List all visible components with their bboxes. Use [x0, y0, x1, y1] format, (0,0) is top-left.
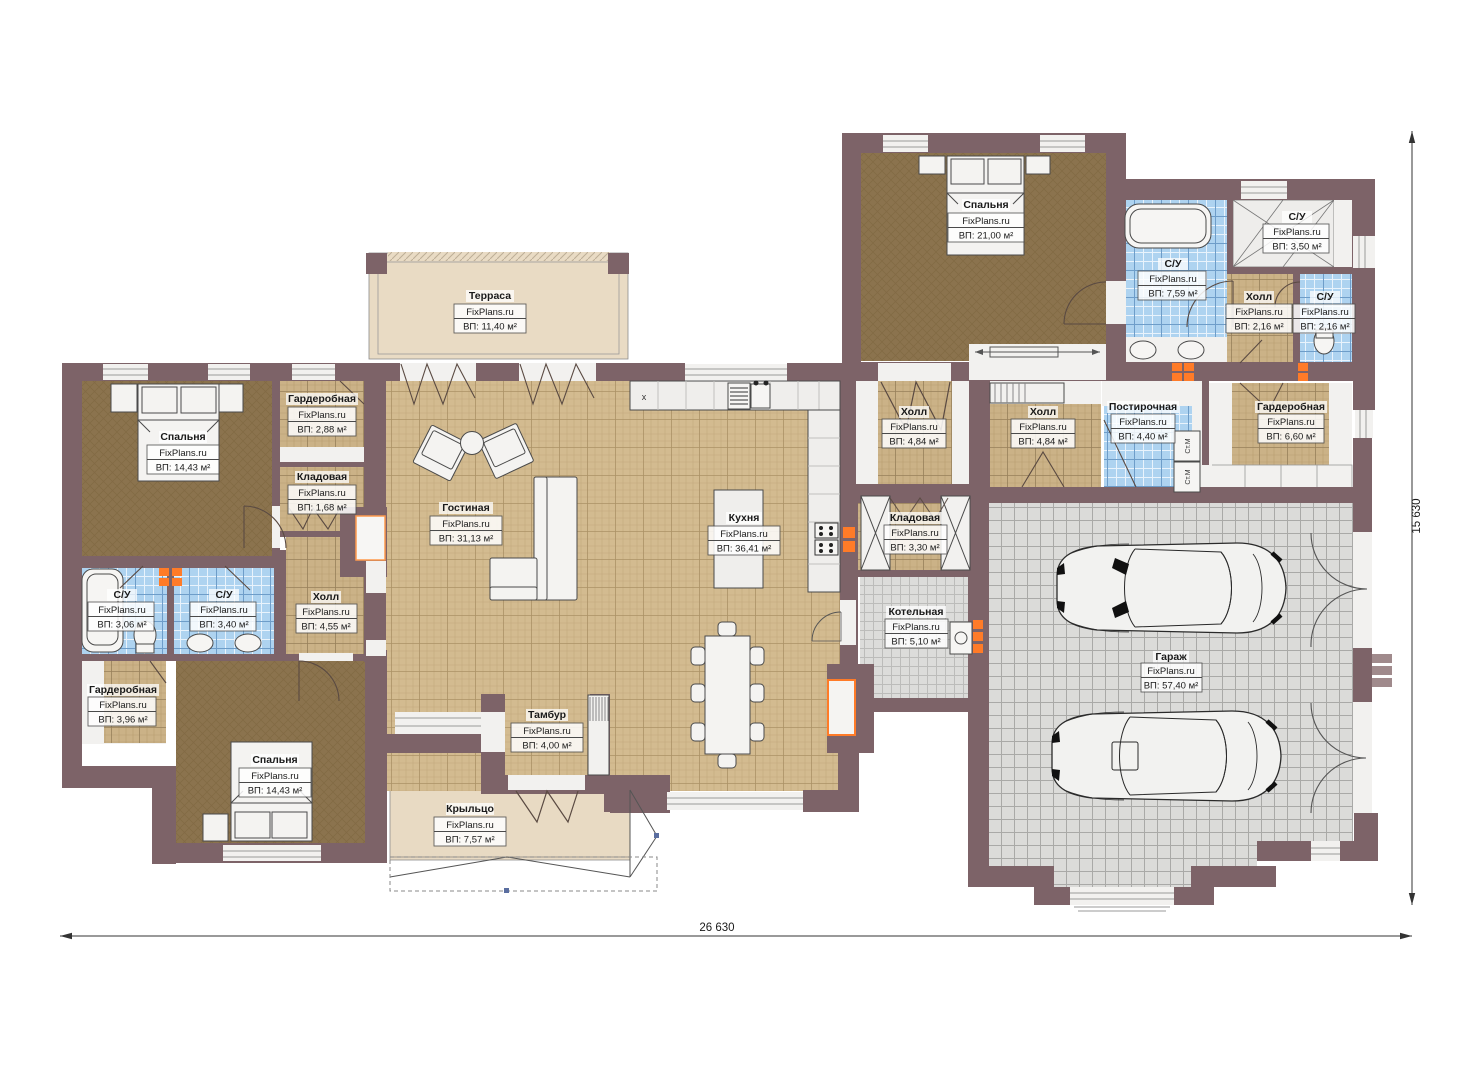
svg-text:ВП: 3,30 м²: ВП: 3,30 м²: [890, 543, 939, 554]
svg-text:FixPlans.ru: FixPlans.ru: [302, 607, 350, 618]
svg-text:ВП: 36,41 м²: ВП: 36,41 м²: [717, 544, 772, 555]
svg-text:FixPlans.ru: FixPlans.ru: [523, 726, 571, 737]
svg-text:ВП: 7,59 м²: ВП: 7,59 м²: [1148, 289, 1197, 300]
svg-text:FixPlans.ru: FixPlans.ru: [298, 488, 346, 499]
svg-text:ВП: 5,10 м²: ВП: 5,10 м²: [891, 637, 940, 648]
svg-text:FixPlans.ru: FixPlans.ru: [1119, 417, 1167, 428]
svg-text:ВП: 21,00 м²: ВП: 21,00 м²: [959, 231, 1014, 242]
svg-text:FixPlans.ru: FixPlans.ru: [98, 605, 146, 616]
svg-text:Тамбур: Тамбур: [528, 709, 566, 721]
svg-text:FixPlans.ru: FixPlans.ru: [1019, 422, 1067, 433]
svg-text:ВП: 7,57 м²: ВП: 7,57 м²: [445, 835, 494, 846]
svg-text:ВП: 3,40 м²: ВП: 3,40 м²: [199, 620, 248, 631]
svg-text:FixPlans.ru: FixPlans.ru: [251, 771, 299, 782]
svg-text:С/У: С/У: [1288, 211, 1306, 223]
svg-text:FixPlans.ru: FixPlans.ru: [962, 216, 1010, 227]
svg-text:Гардеробная: Гардеробная: [1257, 401, 1325, 413]
svg-text:FixPlans.ru: FixPlans.ru: [1267, 417, 1315, 428]
svg-text:С/У: С/У: [215, 589, 233, 601]
svg-text:ВП: 31,13 м²: ВП: 31,13 м²: [439, 534, 494, 545]
svg-text:26 630: 26 630: [699, 922, 734, 934]
svg-text:FixPlans.ru: FixPlans.ru: [891, 528, 939, 539]
svg-text:FixPlans.ru: FixPlans.ru: [892, 622, 940, 633]
svg-text:FixPlans.ru: FixPlans.ru: [466, 307, 514, 318]
svg-text:ВП: 11,40 м²: ВП: 11,40 м²: [463, 322, 517, 333]
svg-text:Ст.М: Ст.М: [1185, 469, 1192, 484]
svg-text:FixPlans.ru: FixPlans.ru: [442, 519, 490, 530]
svg-text:Холл: Холл: [901, 406, 927, 418]
svg-text:FixPlans.ru: FixPlans.ru: [890, 422, 938, 433]
svg-text:Крыльцо: Крыльцо: [446, 803, 494, 815]
svg-text:ВП: 14,43 м²: ВП: 14,43 м²: [156, 463, 211, 474]
svg-text:ВП: 3,96 м²: ВП: 3,96 м²: [98, 715, 147, 726]
svg-text:ВП: 4,55 м²: ВП: 4,55 м²: [301, 622, 350, 633]
svg-text:FixPlans.ru: FixPlans.ru: [1149, 274, 1197, 285]
svg-text:Ст.М: Ст.М: [1185, 438, 1192, 453]
svg-text:Кладовая: Кладовая: [890, 512, 940, 524]
svg-text:15 630: 15 630: [1411, 498, 1423, 533]
svg-text:С/У: С/У: [113, 589, 131, 601]
svg-text:FixPlans.ru: FixPlans.ru: [1235, 307, 1283, 318]
svg-text:ВП: 2,88 м²: ВП: 2,88 м²: [297, 425, 346, 436]
svg-text:С/У: С/У: [1316, 291, 1334, 303]
svg-text:ВП: 3,06 м²: ВП: 3,06 м²: [97, 620, 146, 631]
svg-text:FixPlans.ru: FixPlans.ru: [298, 410, 346, 421]
svg-text:ВП: 3,50 м²: ВП: 3,50 м²: [1272, 242, 1321, 253]
svg-text:ВП: 6,60 м²: ВП: 6,60 м²: [1266, 432, 1315, 443]
svg-text:ВП: 14,43 м²: ВП: 14,43 м²: [248, 786, 303, 797]
svg-text:ВП: 1,68 м²: ВП: 1,68 м²: [297, 503, 346, 514]
svg-text:Гостиная: Гостиная: [442, 502, 489, 514]
svg-text:Терраса: Терраса: [469, 290, 511, 302]
svg-text:FixPlans.ru: FixPlans.ru: [720, 529, 768, 540]
svg-text:С/У: С/У: [1164, 258, 1182, 270]
svg-text:Холл: Холл: [1246, 291, 1272, 303]
svg-text:FixPlans.ru: FixPlans.ru: [446, 820, 494, 831]
svg-text:Спальня: Спальня: [963, 199, 1008, 211]
svg-text:x: x: [642, 392, 647, 402]
svg-text:ВП: 4,84 м²: ВП: 4,84 м²: [1018, 437, 1067, 448]
svg-text:ВП: 2,16 м²: ВП: 2,16 м²: [1300, 322, 1349, 333]
svg-text:Котельная: Котельная: [889, 606, 944, 618]
svg-text:Гардеробная: Гардеробная: [89, 684, 157, 696]
svg-text:FixPlans.ru: FixPlans.ru: [99, 700, 147, 711]
svg-text:Кладовая: Кладовая: [297, 471, 347, 483]
svg-text:ВП: 4,40 м²: ВП: 4,40 м²: [1118, 432, 1167, 443]
svg-text:FixPlans.ru: FixPlans.ru: [1301, 307, 1349, 318]
svg-text:Постирочная: Постирочная: [1109, 401, 1177, 413]
svg-text:Холл: Холл: [313, 591, 339, 603]
svg-text:Спальня: Спальня: [160, 431, 205, 443]
svg-text:ВП: 2,16 м²: ВП: 2,16 м²: [1234, 322, 1283, 333]
svg-text:ВП: 4,84 м²: ВП: 4,84 м²: [889, 437, 938, 448]
svg-text:FixPlans.ru: FixPlans.ru: [200, 605, 248, 616]
svg-text:FixPlans.ru: FixPlans.ru: [1147, 666, 1195, 677]
svg-text:Гардеробная: Гардеробная: [288, 393, 356, 405]
svg-text:FixPlans.ru: FixPlans.ru: [159, 448, 207, 459]
svg-text:Кухня: Кухня: [729, 512, 760, 524]
svg-text:FixPlans.ru: FixPlans.ru: [1273, 227, 1321, 238]
svg-text:ВП: 57,40 м²: ВП: 57,40 м²: [1144, 681, 1199, 692]
svg-text:Холл: Холл: [1030, 406, 1056, 418]
svg-text:Гараж: Гараж: [1155, 651, 1187, 663]
svg-text:ВП: 4,00 м²: ВП: 4,00 м²: [522, 741, 571, 752]
svg-text:Спальня: Спальня: [252, 754, 297, 766]
